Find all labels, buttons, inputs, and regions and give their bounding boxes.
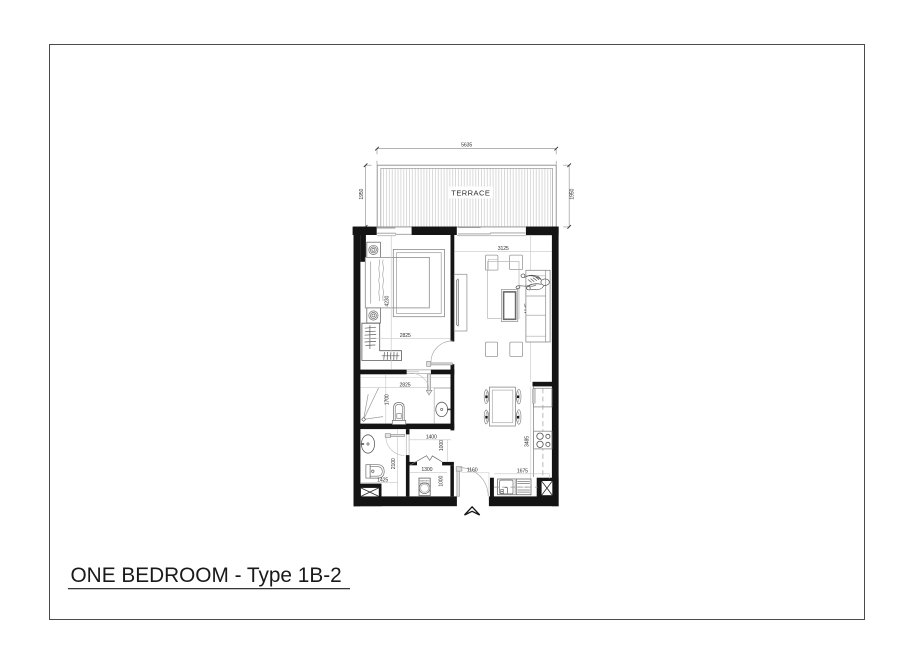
svg-text:1300: 1300 xyxy=(421,467,432,473)
svg-text:1000: 1000 xyxy=(439,475,445,486)
svg-text:3125: 3125 xyxy=(498,246,509,252)
svg-text:4230: 4230 xyxy=(385,295,391,306)
svg-text:1950: 1950 xyxy=(359,188,365,199)
svg-text:2825: 2825 xyxy=(400,333,411,339)
svg-text:1425: 1425 xyxy=(377,477,388,483)
svg-text:1000: 1000 xyxy=(439,440,445,451)
svg-text:1160: 1160 xyxy=(467,468,478,474)
svg-text:2100: 2100 xyxy=(391,458,397,469)
svg-text:ONE BEDROOM - Type 1B-2: ONE BEDROOM - Type 1B-2 xyxy=(71,564,342,587)
svg-text:5635: 5635 xyxy=(461,143,472,149)
svg-text:1700: 1700 xyxy=(385,394,391,405)
svg-text:TERRACE: TERRACE xyxy=(451,188,490,197)
svg-text:3485: 3485 xyxy=(524,436,530,447)
svg-text:2825: 2825 xyxy=(400,382,411,388)
svg-text:MACHINE: MACHINE xyxy=(420,482,430,485)
svg-text:1675: 1675 xyxy=(517,468,528,474)
svg-text:1400: 1400 xyxy=(426,434,437,440)
svg-text:1950: 1950 xyxy=(570,188,576,199)
